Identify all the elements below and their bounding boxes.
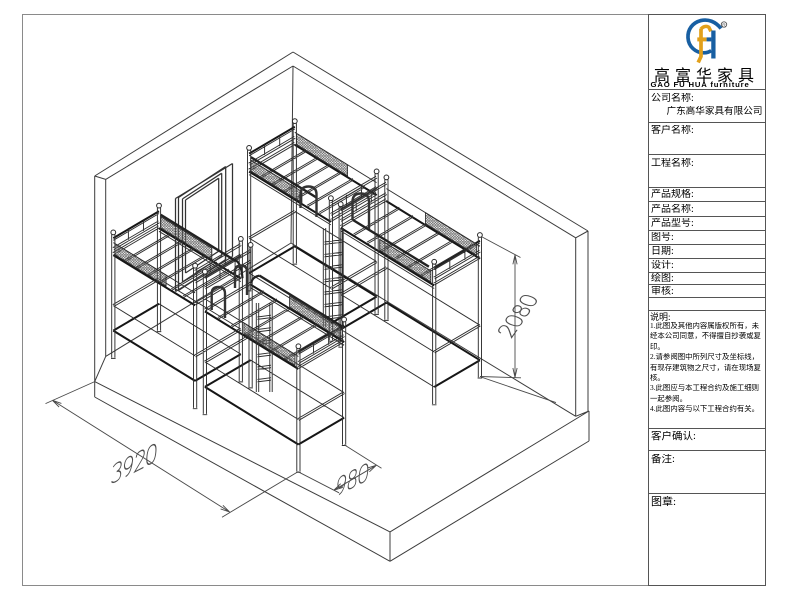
svg-text:R: R (722, 23, 726, 29)
